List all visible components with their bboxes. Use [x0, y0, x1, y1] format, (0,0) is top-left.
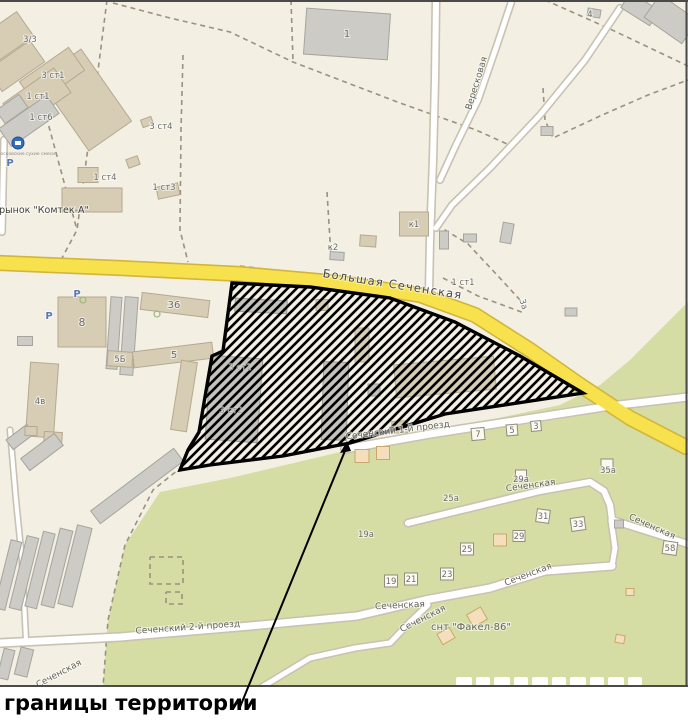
map-label: 1 ст4 [93, 173, 116, 183]
map-label: 1 ст6 [29, 113, 52, 123]
building [360, 235, 377, 247]
house [494, 534, 507, 546]
map-label: 4в [35, 397, 45, 407]
map-label: 29а [513, 475, 529, 485]
map-label: 1 [344, 29, 350, 40]
house [355, 450, 369, 463]
map-label: к1 [409, 220, 420, 230]
map-label: 19 [386, 577, 397, 587]
building [541, 127, 553, 136]
map-label: 3 ст4 [149, 122, 172, 132]
map-label: 3/3 [23, 35, 37, 45]
map-label: Р [45, 311, 52, 322]
house [626, 589, 634, 596]
map-label: 3 [533, 422, 538, 432]
map-label: 29 [514, 532, 525, 542]
map-label: 3 ст2 [219, 406, 242, 416]
company-logo-glyph [15, 141, 21, 145]
map-label: 3 ст1 [41, 71, 64, 81]
map-screenshot: Большая СеченскаяВересковаяСеченский 1-й… [0, 0, 688, 720]
building [18, 337, 33, 346]
building [440, 231, 449, 249]
map-label: 5 [509, 426, 514, 436]
map-label: 35а [600, 466, 616, 476]
map-label: 3 ст1 [228, 363, 251, 373]
map-label: 23 [442, 570, 453, 580]
map-label: рынок "Комтек-А" [0, 205, 89, 216]
map-label: снт "Факел-86" [431, 622, 511, 633]
map-label: 5Б [114, 355, 125, 365]
map-canvas[interactable]: Большая СеченскаяВересковаяСеченский 1-й… [0, 0, 688, 720]
map-label: 31 [538, 512, 549, 522]
map-label: к2 [328, 243, 339, 253]
building [565, 308, 577, 316]
territory-legend-label: границы территории [4, 687, 258, 720]
building [615, 520, 624, 528]
map-label: 19а [358, 530, 374, 540]
map-label: 4 [587, 10, 592, 20]
map-label: 33 [573, 520, 584, 530]
map-label: 1 ст3 [152, 183, 175, 193]
map-label: 25а [443, 494, 459, 504]
map-label: 1 ст1 [451, 278, 474, 288]
map-label: Р [73, 289, 80, 300]
map-label: 58 [665, 544, 676, 554]
map-label: 7 [475, 430, 480, 440]
map-label: Р [6, 158, 13, 169]
house [615, 634, 625, 643]
building [464, 234, 477, 242]
map-label: московские сухие смеси [0, 152, 55, 157]
building [25, 427, 37, 436]
map-label: 25 [462, 545, 473, 555]
house [377, 447, 390, 460]
map-label: 1 ст1 [26, 92, 49, 102]
map-label: 8 [79, 316, 86, 329]
map-label: 36 [168, 300, 181, 311]
map-label: 5 [171, 350, 177, 361]
map-label: 21 [406, 575, 417, 585]
